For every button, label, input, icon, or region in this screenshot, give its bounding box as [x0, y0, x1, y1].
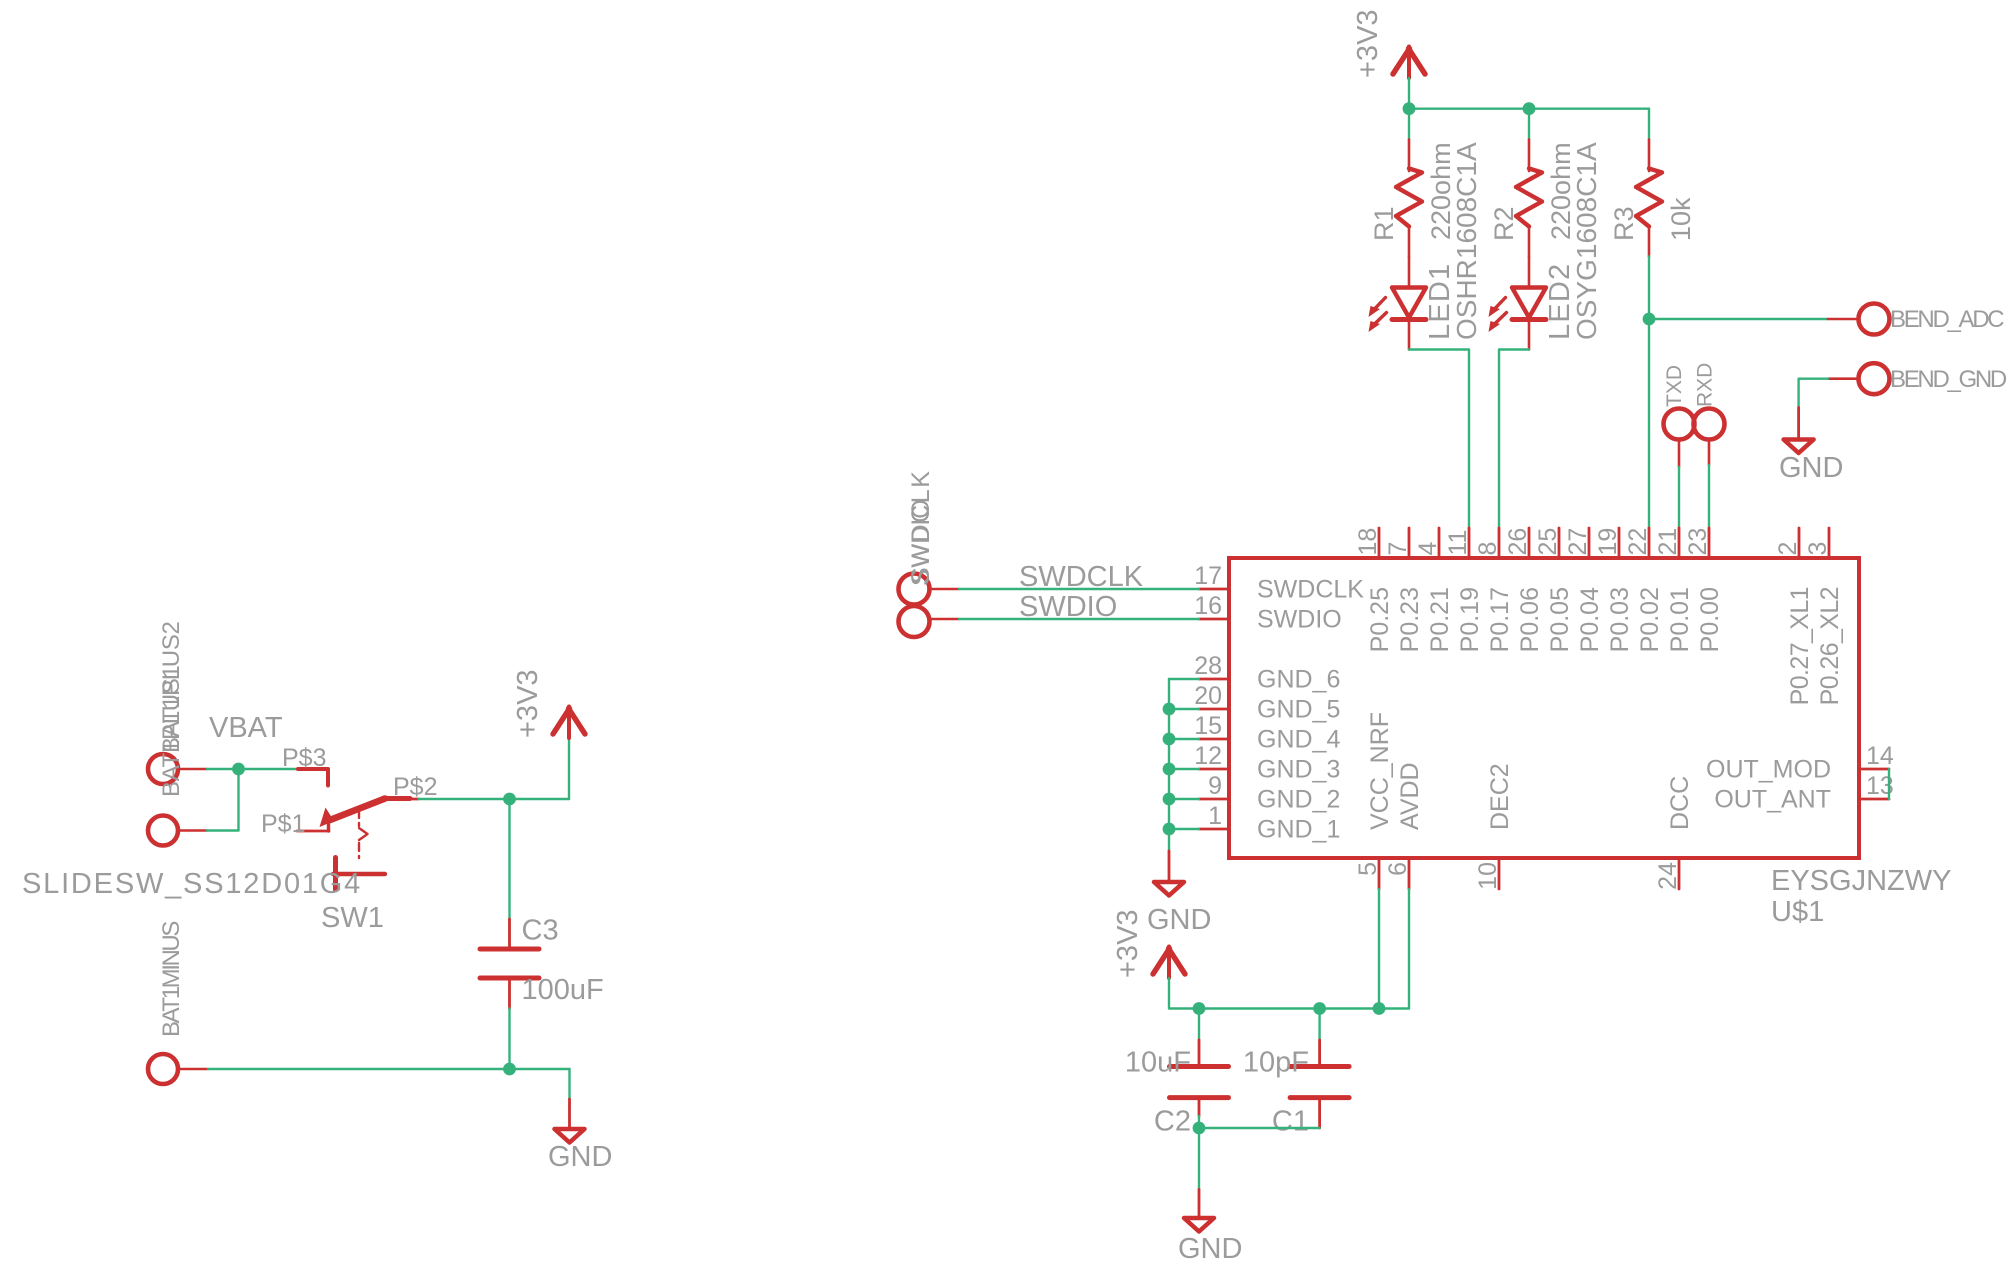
svg-text:R3: R3 — [1609, 206, 1639, 241]
svg-text:P$2: P$2 — [393, 773, 437, 801]
svg-text:SWDIO: SWDIO — [1019, 591, 1117, 623]
svg-text:17: 17 — [1194, 562, 1222, 590]
svg-text:SW1: SW1 — [321, 902, 384, 934]
svg-text:21: 21 — [1654, 528, 1682, 556]
svg-text:VBAT: VBAT — [209, 712, 283, 744]
svg-text:SWDCLK: SWDCLK — [1257, 576, 1364, 604]
svg-text:27: 27 — [1564, 528, 1592, 556]
svg-text:VCC_NRF: VCC_NRF — [1366, 712, 1394, 830]
svg-text:10: 10 — [1474, 862, 1502, 890]
svg-text:DEC2: DEC2 — [1486, 763, 1514, 830]
svg-text:P0.27_XL1: P0.27_XL1 — [1786, 587, 1814, 705]
svg-text:16: 16 — [1194, 592, 1222, 620]
svg-text:P0.03: P0.03 — [1606, 587, 1634, 652]
svg-text:P0.23: P0.23 — [1396, 587, 1424, 652]
svg-text:DCC: DCC — [1666, 776, 1694, 830]
svg-text:SLIDESW_SS12D01G4: SLIDESW_SS12D01G4 — [22, 868, 362, 900]
svg-text:10uF: 10uF — [1125, 1047, 1191, 1079]
svg-text:19: 19 — [1594, 528, 1622, 556]
svg-text:P0.26_XL2: P0.26_XL2 — [1816, 587, 1844, 705]
svg-text:10k: 10k — [1666, 197, 1696, 241]
svg-text:R2: R2 — [1489, 206, 1519, 241]
svg-text:OUT_ANT: OUT_ANT — [1714, 786, 1831, 814]
svg-text:P0.05: P0.05 — [1546, 587, 1574, 652]
svg-text:BAT1PLUS1: BAT1PLUS1 — [158, 665, 185, 797]
svg-text:AVDD: AVDD — [1396, 762, 1424, 830]
svg-text:P0.25: P0.25 — [1366, 587, 1394, 652]
svg-text:GND: GND — [1779, 452, 1843, 484]
svg-text:8: 8 — [1474, 542, 1502, 556]
svg-text:3: 3 — [1804, 542, 1832, 556]
svg-text:C1: C1 — [1272, 1106, 1309, 1138]
svg-text:28: 28 — [1194, 652, 1222, 680]
svg-text:4: 4 — [1414, 542, 1442, 556]
svg-text:20: 20 — [1194, 682, 1222, 710]
svg-text:C3: C3 — [522, 915, 559, 947]
svg-text:OSYG1608C1A: OSYG1608C1A — [1571, 142, 1602, 340]
svg-text:U$1: U$1 — [1771, 896, 1824, 928]
svg-text:GND: GND — [548, 1141, 612, 1173]
svg-text:11: 11 — [1444, 530, 1472, 556]
svg-text:15: 15 — [1194, 712, 1222, 740]
svg-text:TXD: TXD — [1663, 365, 1686, 407]
svg-text:P0.21: P0.21 — [1426, 587, 1454, 652]
svg-text:R1: R1 — [1369, 206, 1399, 241]
svg-text:P0.17: P0.17 — [1486, 587, 1514, 652]
svg-text:P$3: P$3 — [282, 744, 326, 772]
svg-text:BEND_GND: BEND_GND — [1890, 366, 2007, 393]
svg-text:+3V3: +3V3 — [512, 669, 544, 738]
svg-text:P0.19: P0.19 — [1456, 587, 1484, 652]
svg-text:P0.01: P0.01 — [1666, 587, 1694, 652]
svg-text:9: 9 — [1208, 772, 1222, 800]
svg-text:GND_6: GND_6 — [1257, 666, 1340, 694]
svg-text:24: 24 — [1654, 862, 1682, 890]
svg-text:GND_2: GND_2 — [1257, 786, 1340, 814]
svg-text:7: 7 — [1384, 542, 1412, 556]
svg-text:RXD: RXD — [1694, 363, 1717, 407]
svg-text:BAT1MINUS: BAT1MINUS — [158, 922, 185, 1037]
svg-text:C2: C2 — [1154, 1106, 1191, 1138]
svg-text:23: 23 — [1684, 528, 1712, 556]
svg-text:2: 2 — [1774, 542, 1802, 556]
svg-text:14: 14 — [1866, 742, 1894, 770]
svg-text:P0.06: P0.06 — [1516, 587, 1544, 652]
svg-text:EYSGJNZWY: EYSGJNZWY — [1771, 865, 1951, 897]
svg-text:P0.02: P0.02 — [1636, 587, 1664, 652]
svg-text:+3V3: +3V3 — [1112, 909, 1144, 978]
svg-text:GND_3: GND_3 — [1257, 756, 1340, 784]
svg-text:P$1: P$1 — [261, 810, 305, 838]
svg-text:SWDIO: SWDIO — [1257, 606, 1342, 634]
svg-text:100uF: 100uF — [522, 974, 604, 1006]
svg-text:P0.04: P0.04 — [1576, 587, 1604, 652]
svg-text:12: 12 — [1194, 742, 1222, 770]
svg-text:10pF: 10pF — [1243, 1047, 1309, 1079]
svg-text:+3V3: +3V3 — [1352, 9, 1384, 78]
svg-text:GND: GND — [1147, 904, 1211, 936]
svg-text:GND_4: GND_4 — [1257, 726, 1340, 754]
svg-text:18: 18 — [1354, 528, 1382, 556]
svg-text:26: 26 — [1504, 528, 1532, 556]
svg-text:22: 22 — [1624, 528, 1652, 556]
svg-text:25: 25 — [1534, 528, 1562, 556]
svg-text:BEND_ADC: BEND_ADC — [1890, 306, 2004, 333]
svg-text:5: 5 — [1354, 862, 1382, 876]
svg-text:OSHR1608C1A: OSHR1608C1A — [1451, 142, 1482, 340]
svg-text:6: 6 — [1384, 862, 1412, 876]
svg-text:GND_5: GND_5 — [1257, 696, 1340, 724]
svg-text:SWDIO: SWDIO — [907, 499, 935, 584]
svg-text:OUT_MOD: OUT_MOD — [1706, 756, 1831, 784]
svg-text:P0.00: P0.00 — [1696, 587, 1724, 652]
svg-text:1: 1 — [1208, 802, 1222, 830]
svg-text:SWDCLK: SWDCLK — [1019, 561, 1144, 593]
svg-text:GND: GND — [1178, 1233, 1242, 1265]
svg-text:GND_1: GND_1 — [1257, 816, 1340, 844]
